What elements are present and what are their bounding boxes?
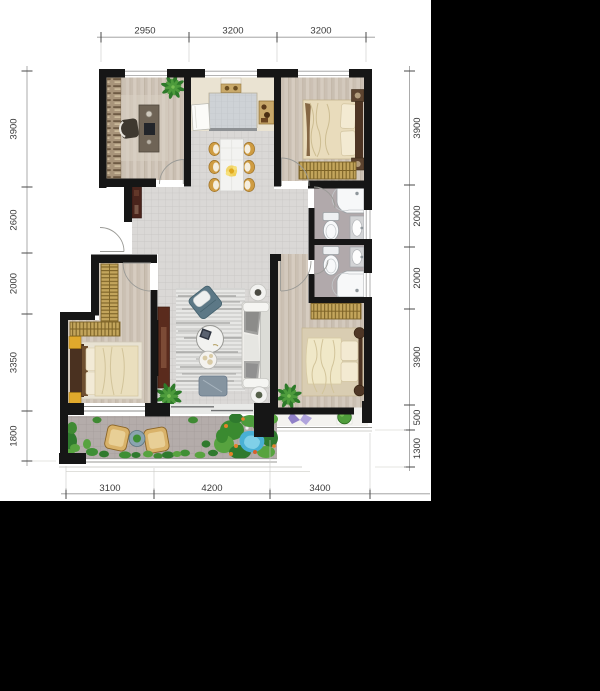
svg-text:3100: 3100 — [99, 483, 120, 494]
svg-text:1300: 1300 — [412, 438, 423, 459]
svg-text:3200: 3200 — [222, 26, 243, 37]
svg-text:3400: 3400 — [309, 483, 330, 494]
svg-text:3900: 3900 — [9, 118, 20, 139]
svg-text:2950: 2950 — [134, 26, 155, 37]
svg-text:500: 500 — [412, 410, 423, 426]
svg-text:2000: 2000 — [9, 273, 20, 294]
svg-text:3200: 3200 — [310, 26, 331, 37]
svg-text:4200: 4200 — [201, 483, 222, 494]
svg-text:2600: 2600 — [9, 209, 20, 230]
svg-text:2000: 2000 — [412, 267, 423, 288]
svg-text:2000: 2000 — [412, 205, 423, 226]
svg-text:1800: 1800 — [9, 425, 20, 446]
svg-text:3900: 3900 — [412, 346, 423, 367]
svg-text:3350: 3350 — [9, 352, 20, 373]
svg-text:3900: 3900 — [412, 117, 423, 138]
